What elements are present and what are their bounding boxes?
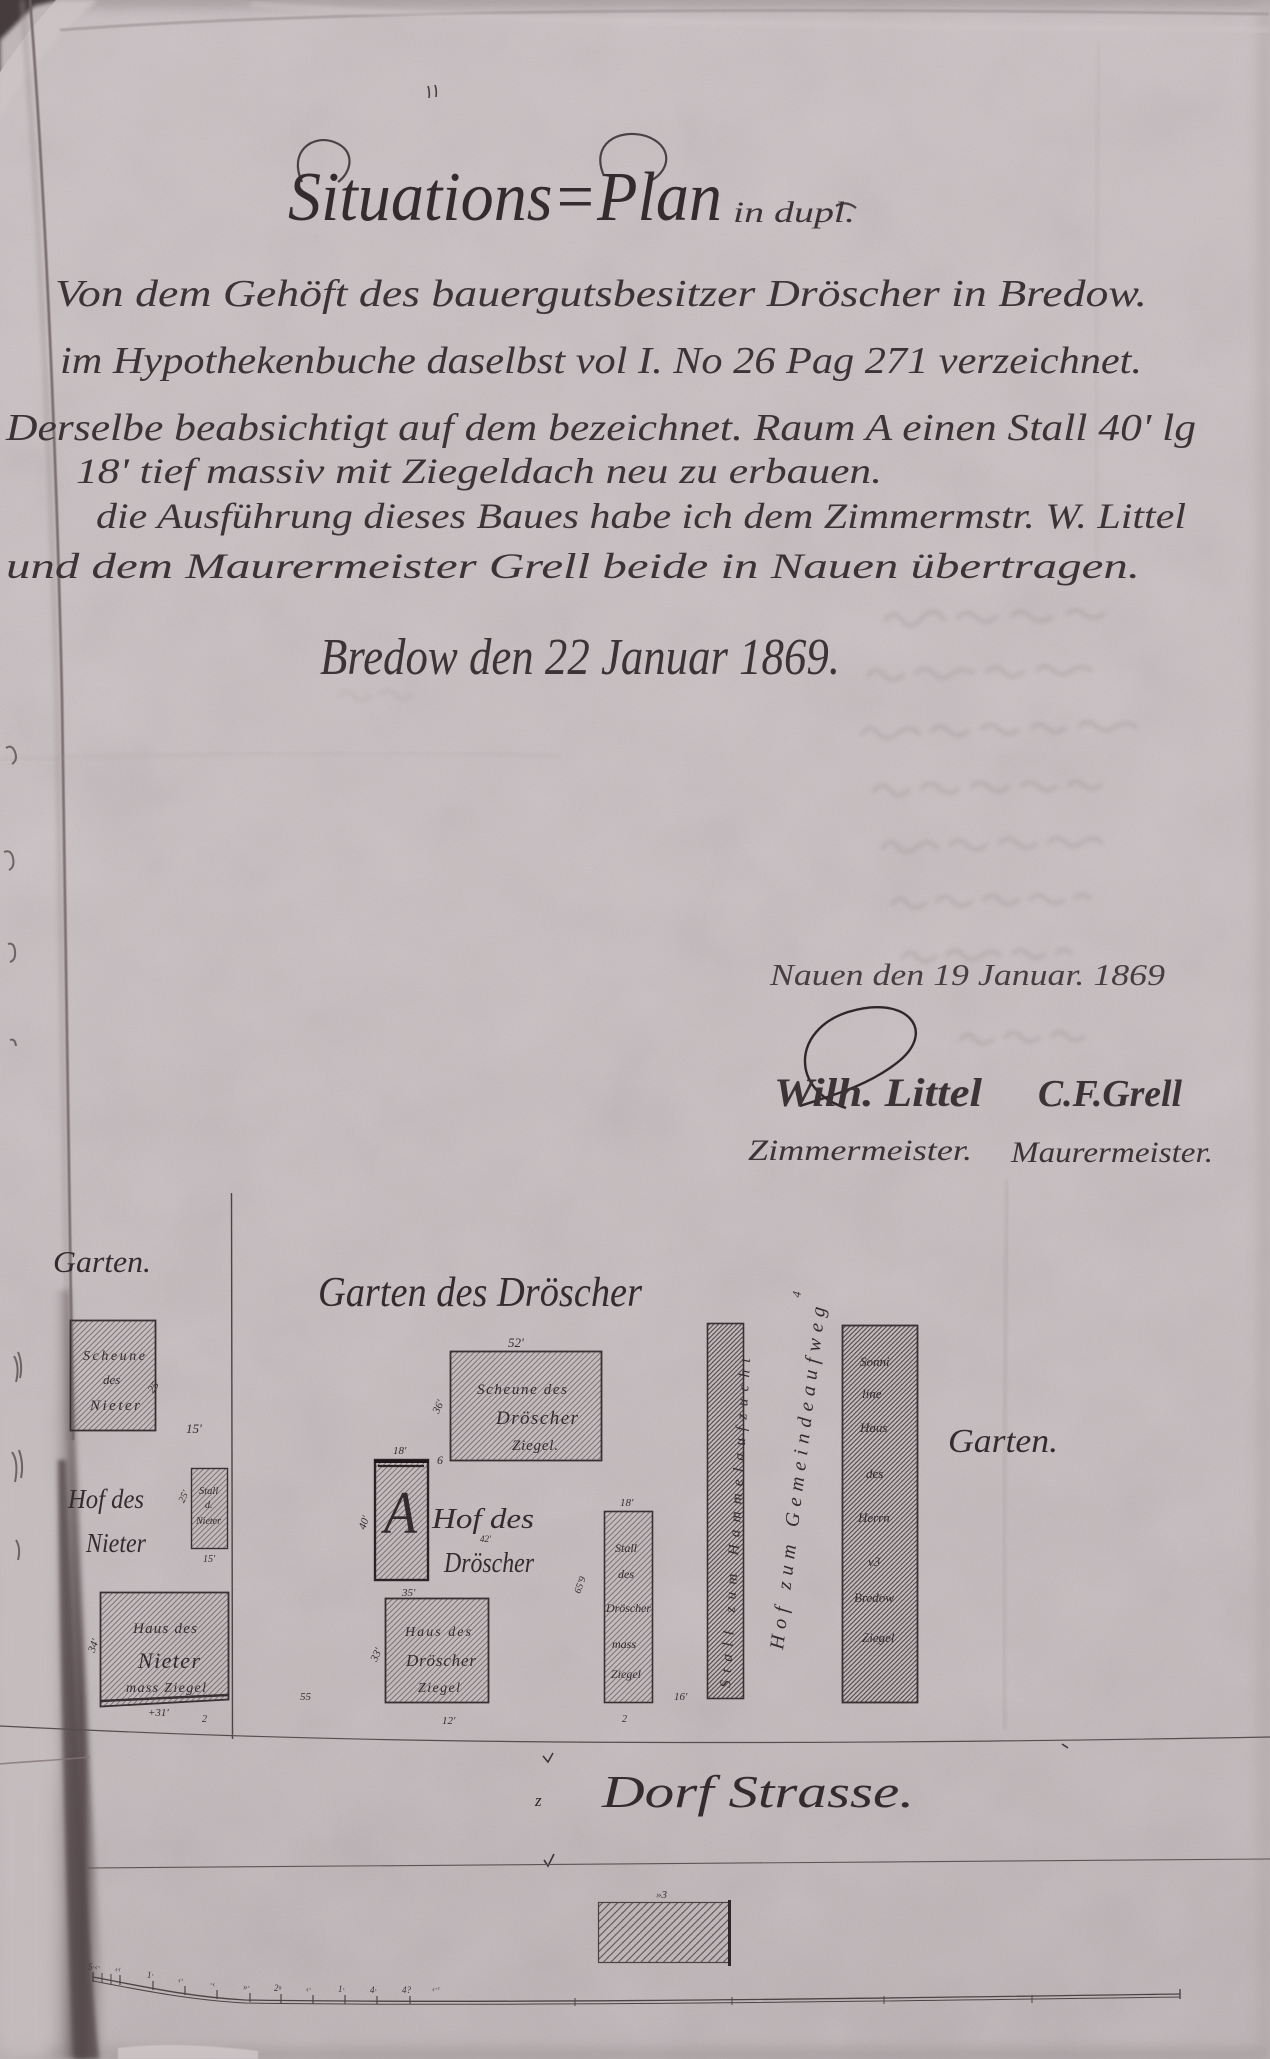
svg-text:Situations=Plan: Situations=Plan — [288, 159, 722, 236]
svg-text:+31': +31' — [148, 1707, 169, 1719]
svg-text:Scheune: Scheune — [83, 1349, 145, 1364]
svg-text:2ᵍ: 2ᵍ — [274, 1983, 282, 1993]
svg-text:Ziegel: Ziegel — [862, 1630, 895, 1645]
svg-text:Haus des: Haus des — [404, 1625, 472, 1640]
svg-text:des: des — [866, 1466, 883, 1481]
svg-text:die Ausführung dieses Baues ha: die Ausführung dieses Baues habe ich dem… — [96, 496, 1186, 536]
svg-text:Garten des Dröscher: Garten des Dröscher — [318, 1270, 643, 1316]
svg-text:‹·: ‹· — [178, 1975, 183, 1985]
svg-text:Sonni: Sonni — [860, 1354, 890, 1369]
svg-text:Stall: Stall — [199, 1486, 218, 1497]
svg-text:Dröscher: Dröscher — [605, 1601, 651, 1615]
svg-text:Ziegel.: Ziegel. — [512, 1438, 558, 1454]
svg-text:2: 2 — [202, 1714, 207, 1725]
svg-text:Nieter: Nieter — [195, 1516, 221, 1527]
svg-text:5·‹·: 5·‹· — [88, 1962, 100, 1972]
svg-text:Zimmermeister.: Zimmermeister. — [748, 1134, 972, 1167]
svg-text:52': 52' — [508, 1335, 524, 1350]
svg-text:‹·ᶜ: ‹·ᶜ — [432, 1984, 440, 1994]
svg-text:Bredow: Bredow — [854, 1590, 894, 1605]
svg-text:Derselbe beabsichtigt auf dem: Derselbe beabsichtigt auf dem bezeichnet… — [5, 407, 1196, 449]
svg-text:4?: 4? — [402, 1985, 412, 1995]
svg-text:mass Ziegel: mass Ziegel — [126, 1681, 206, 1696]
svg-text:42': 42' — [480, 1534, 492, 1544]
svg-text:Dorf Strasse.: Dorf Strasse. — [601, 1766, 914, 1817]
svg-text:6: 6 — [437, 1453, 443, 1467]
svg-text:»3: »3 — [656, 1889, 668, 1901]
svg-text:line: line — [862, 1386, 882, 1401]
svg-text:1·: 1· — [147, 1970, 154, 1980]
svg-text:v3: v3 — [868, 1554, 881, 1569]
svg-text:Ziegel: Ziegel — [611, 1667, 642, 1681]
svg-text:Von dem Gehöft des bauergutsbe: Von dem Gehöft des bauergutsbesitzer Drö… — [55, 273, 1147, 315]
svg-text:Stall: Stall — [615, 1541, 638, 1555]
svg-text:2: 2 — [622, 1714, 627, 1725]
svg-text:A: A — [380, 1480, 417, 1546]
svg-text:Haus des: Haus des — [132, 1621, 197, 1637]
svg-text:des: des — [103, 1372, 120, 1387]
svg-text:Nieter: Nieter — [85, 1528, 146, 1558]
svg-text:und dem Maurermeister Grell be: und dem Maurermeister Grell beide in Nau… — [6, 546, 1140, 586]
svg-text:Hof des: Hof des — [67, 1484, 144, 1514]
svg-text:18': 18' — [393, 1445, 407, 1457]
svg-text:Garten.: Garten. — [948, 1423, 1058, 1460]
svg-text:Nauen den 19 Januar. 1869: Nauen den 19 Januar. 1869 — [769, 957, 1165, 992]
svg-text:in dupl.: in dupl. — [733, 196, 855, 229]
svg-text:Haus: Haus — [859, 1420, 887, 1435]
svg-text:‹·: ‹· — [306, 1984, 311, 1994]
svg-text:4·: 4· — [370, 1985, 377, 1995]
svg-text:z: z — [534, 1791, 542, 1810]
svg-text:Garten.: Garten. — [53, 1244, 151, 1279]
svg-text:Nieter: Nieter — [137, 1648, 200, 1673]
svg-text:12': 12' — [442, 1715, 456, 1727]
svg-text:d.: d. — [205, 1500, 213, 1511]
svg-text:‹‹: ‹‹ — [115, 1964, 121, 1974]
svg-text:Wilh. Littel: Wilh. Littel — [774, 1070, 983, 1115]
svg-text:Scheune des: Scheune des — [477, 1382, 567, 1398]
svg-text:16': 16' — [674, 1691, 688, 1703]
svg-text:55: 55 — [300, 1691, 312, 1703]
svg-text:18': 18' — [620, 1497, 634, 1509]
svg-text:Herrn: Herrn — [857, 1510, 890, 1525]
svg-text:mass: mass — [612, 1637, 636, 1651]
svg-text:Maurermeister.: Maurermeister. — [1010, 1136, 1213, 1169]
svg-text:C.F.Grell: C.F.Grell — [1038, 1073, 1182, 1115]
svg-text:Hof des: Hof des — [431, 1504, 534, 1535]
svg-text:·‹: ·‹ — [210, 1979, 215, 1989]
svg-text:Dröscher: Dröscher — [495, 1408, 579, 1429]
svg-text:15': 15' — [203, 1554, 216, 1565]
svg-text:Bredow den 22 Januar 1869.: Bredow den 22 Januar 1869. — [320, 629, 840, 686]
svg-text:des: des — [618, 1567, 634, 1581]
svg-text:18' tief massiv mit Ziegeldach: 18' tief massiv mit Ziegeldach neu zu er… — [76, 451, 882, 491]
svg-text:im Hypothekenbuche daselbst vo: im Hypothekenbuche daselbst vol I. No 26… — [60, 340, 1142, 382]
svg-text:35': 35' — [401, 1587, 416, 1599]
svg-text:»·: »· — [243, 1982, 250, 1992]
svg-text:15': 15' — [186, 1421, 202, 1436]
svg-text:Dröscher: Dröscher — [405, 1651, 476, 1670]
svg-text:1·: 1· — [338, 1984, 345, 1994]
svg-text:Dröscher: Dröscher — [443, 1548, 534, 1579]
